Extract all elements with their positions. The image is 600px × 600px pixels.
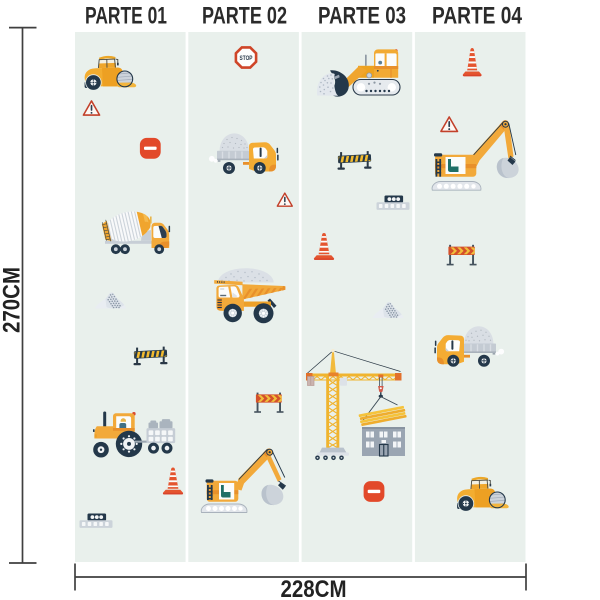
svg-text:270CM: 270CM xyxy=(0,267,26,333)
svg-text:PARTE 03: PARTE 03 xyxy=(318,3,406,30)
svg-text:PARTE 02: PARTE 02 xyxy=(202,3,287,30)
svg-text:PARTE 04: PARTE 04 xyxy=(432,3,522,30)
svg-text:228CM: 228CM xyxy=(281,576,347,600)
svg-text:PARTE 01: PARTE 01 xyxy=(85,3,167,30)
